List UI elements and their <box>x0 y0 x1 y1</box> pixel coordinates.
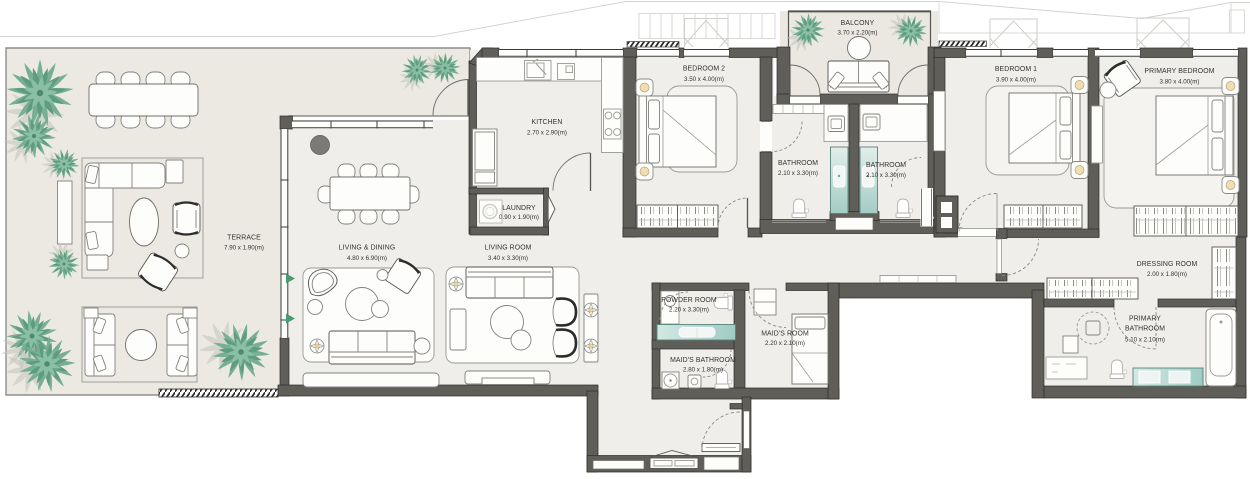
svg-text:TERRACE: TERRACE <box>227 235 261 242</box>
svg-text:2.80 x 1.80(m): 2.80 x 1.80(m) <box>683 367 723 374</box>
svg-text:2.10 x 3.30(m): 2.10 x 3.30(m) <box>778 170 818 177</box>
svg-text:7.90 x 1.90(m): 7.90 x 1.90(m) <box>224 245 264 252</box>
svg-text:BATHROOM: BATHROOM <box>778 160 818 167</box>
svg-text:3.90 x 4.00(m): 3.90 x 4.00(m) <box>996 77 1036 84</box>
svg-text:PRIMARY BEDROOM: PRIMARY BEDROOM <box>1144 68 1214 75</box>
svg-text:LIVING & DINING: LIVING & DINING <box>339 245 396 252</box>
svg-text:3.70 x 2.20(m): 3.70 x 2.20(m) <box>838 30 878 37</box>
svg-text:BATHROOM: BATHROOM <box>1125 326 1165 333</box>
svg-text:PRIMARY: PRIMARY <box>1129 316 1161 323</box>
svg-text:KITCHEN: KITCHEN <box>532 119 563 126</box>
svg-text:4.80 x 6.90(m): 4.80 x 6.90(m) <box>347 255 387 262</box>
svg-text:3.80 x 4.00(m): 3.80 x 4.00(m) <box>1160 79 1200 86</box>
svg-text:0.90 x 1.90(m): 0.90 x 1.90(m) <box>499 214 539 221</box>
svg-text:BATHROOM: BATHROOM <box>866 162 906 169</box>
svg-text:DRESSING ROOM: DRESSING ROOM <box>1137 261 1198 268</box>
svg-text:2.00 x 1.80(m): 2.00 x 1.80(m) <box>1147 271 1187 278</box>
svg-text:2.20 x 3.30(m): 2.20 x 3.30(m) <box>669 307 709 314</box>
svg-text:5.10 x 2.10(m): 5.10 x 2.10(m) <box>1125 337 1165 344</box>
svg-text:BALCONY: BALCONY <box>841 20 875 27</box>
svg-text:3.40 x 3.30(m): 3.40 x 3.30(m) <box>488 255 528 262</box>
svg-text:LIVING ROOM: LIVING ROOM <box>484 245 531 252</box>
svg-text:POWDER ROOM: POWDER ROOM <box>661 297 717 304</box>
svg-text:LAUNDRY: LAUNDRY <box>502 205 536 212</box>
svg-text:MAID'S BATHROOM: MAID'S BATHROOM <box>670 357 736 364</box>
svg-text:2.70 x 2.90(m): 2.70 x 2.90(m) <box>527 130 567 137</box>
svg-text:MAID'S ROOM: MAID'S ROOM <box>761 331 809 338</box>
svg-text:2.20 x 2.10(m): 2.20 x 2.10(m) <box>765 340 805 347</box>
svg-text:BEDROOM 1: BEDROOM 1 <box>995 66 1037 73</box>
svg-text:3.50 x 4.00(m): 3.50 x 4.00(m) <box>684 76 724 83</box>
svg-text:2.10 x 3.30(m): 2.10 x 3.30(m) <box>866 172 906 179</box>
svg-text:BEDROOM 2: BEDROOM 2 <box>683 66 725 73</box>
